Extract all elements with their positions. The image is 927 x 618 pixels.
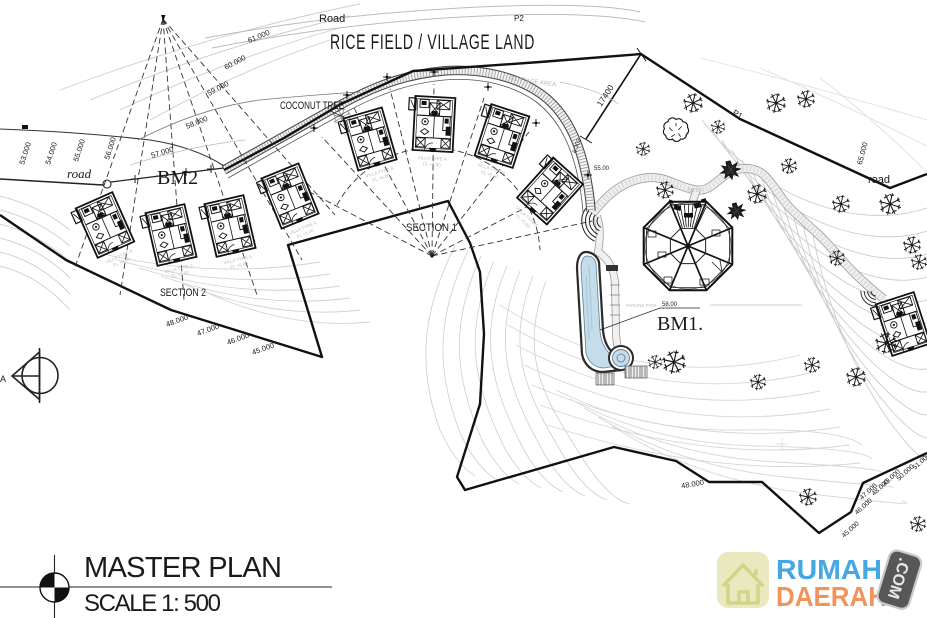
svg-text:road: road: [868, 174, 890, 186]
svg-text:A: A: [0, 374, 6, 384]
svg-text:14.00: 14.00: [662, 305, 673, 310]
svg-text:55.00: 55.00: [594, 166, 610, 172]
svg-text:RICE FIELD / VILLAGE LAND: RICE FIELD / VILLAGE LAND: [330, 31, 535, 54]
svg-text:road: road: [67, 166, 92, 181]
svg-text:BM1.: BM1.: [657, 313, 703, 335]
svg-text:COCONUT TREE: COCONUT TREE: [280, 100, 344, 112]
svg-text:59.50: 59.50: [688, 188, 702, 194]
svg-text:BM2: BM2: [157, 167, 198, 189]
svg-text:PARKING POOL: PARKING POOL: [626, 303, 658, 308]
svg-text:MASTER PLAN: MASTER PLAN: [84, 552, 282, 584]
svg-text:SCALE 1: 500: SCALE 1: 500: [84, 590, 221, 617]
svg-text:FL +5.00: FL +5.00: [423, 161, 441, 167]
svg-text:P2: P2: [514, 14, 524, 23]
svg-text:SECTION 1: SECTION 1: [406, 222, 457, 234]
svg-text:SECTION 2: SECTION 2: [160, 287, 206, 299]
svg-text:DAERAH: DAERAH: [776, 581, 887, 612]
svg-text:Road: Road: [319, 13, 345, 25]
